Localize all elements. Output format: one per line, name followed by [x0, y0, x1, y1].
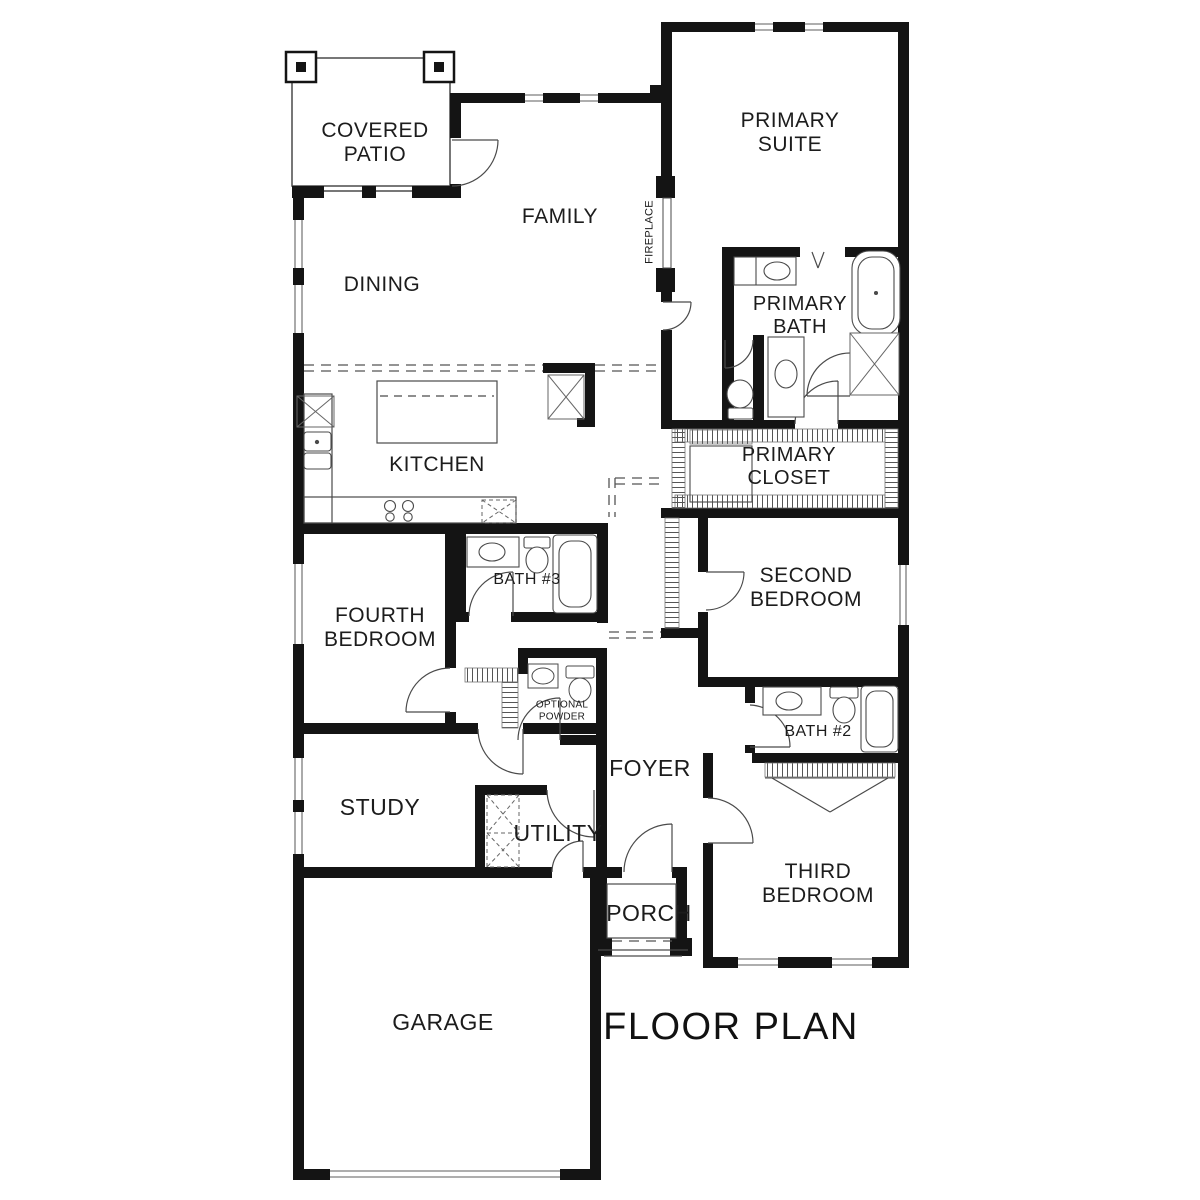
room-label-second-bedroom: SECOND BEDROOM	[750, 564, 862, 612]
room-label-bath3: BATH #3	[493, 571, 560, 589]
freestanding-tub-icon	[852, 251, 900, 335]
oven-icon	[482, 500, 516, 523]
powder-fixtures	[528, 664, 594, 702]
kitchen-island	[377, 381, 497, 443]
room-label-dining: DINING	[344, 273, 421, 297]
room-label-covered-patio: COVERED PATIO	[321, 119, 428, 167]
primary-bath-vanity2	[768, 337, 804, 417]
room-label-bath2: BATH #2	[784, 723, 851, 741]
cooktop-icon	[385, 501, 414, 522]
room-label-garage: GARAGE	[392, 1009, 493, 1035]
room-label-kitchen: KITCHEN	[389, 453, 485, 477]
shower-icon	[850, 333, 899, 395]
page-title: FLOOR PLAN	[603, 1006, 859, 1050]
primary-toilet-icon	[727, 380, 753, 419]
room-label-fourth-bedroom: FOURTH BEDROOM	[324, 604, 436, 652]
fireplace-icon	[663, 198, 671, 268]
room-label-primary-bath: PRIMARY BATH	[753, 293, 847, 339]
refrigerator-icon	[548, 375, 584, 419]
kitchen-sink-icon	[304, 432, 331, 469]
cased-openings	[304, 365, 672, 941]
room-label-porch: PORCH	[606, 900, 692, 926]
primary-bath-vanity	[734, 257, 796, 285]
bath2-fixtures	[763, 686, 898, 752]
floor-plan-drawing	[0, 0, 1200, 1200]
room-label-optional-powder: OPTIONAL POWDER	[536, 700, 588, 723]
patio-posts	[286, 52, 454, 82]
room-label-fireplace: FIREPLACE	[644, 200, 657, 264]
room-label-foyer: FOYER	[609, 755, 691, 781]
room-label-study: STUDY	[340, 794, 420, 820]
room-label-family: FAMILY	[522, 205, 598, 229]
room-label-primary-closet: PRIMARY CLOSET	[742, 444, 836, 490]
room-label-third-bedroom: THIRD BEDROOM	[762, 860, 874, 908]
floor-plan-page: COVERED PATIO FAMILY DINING FIREPLACE PR…	[0, 0, 1200, 1200]
room-label-primary-suite: PRIMARY SUITE	[741, 109, 840, 157]
room-label-utility: UTILITY	[513, 820, 602, 846]
